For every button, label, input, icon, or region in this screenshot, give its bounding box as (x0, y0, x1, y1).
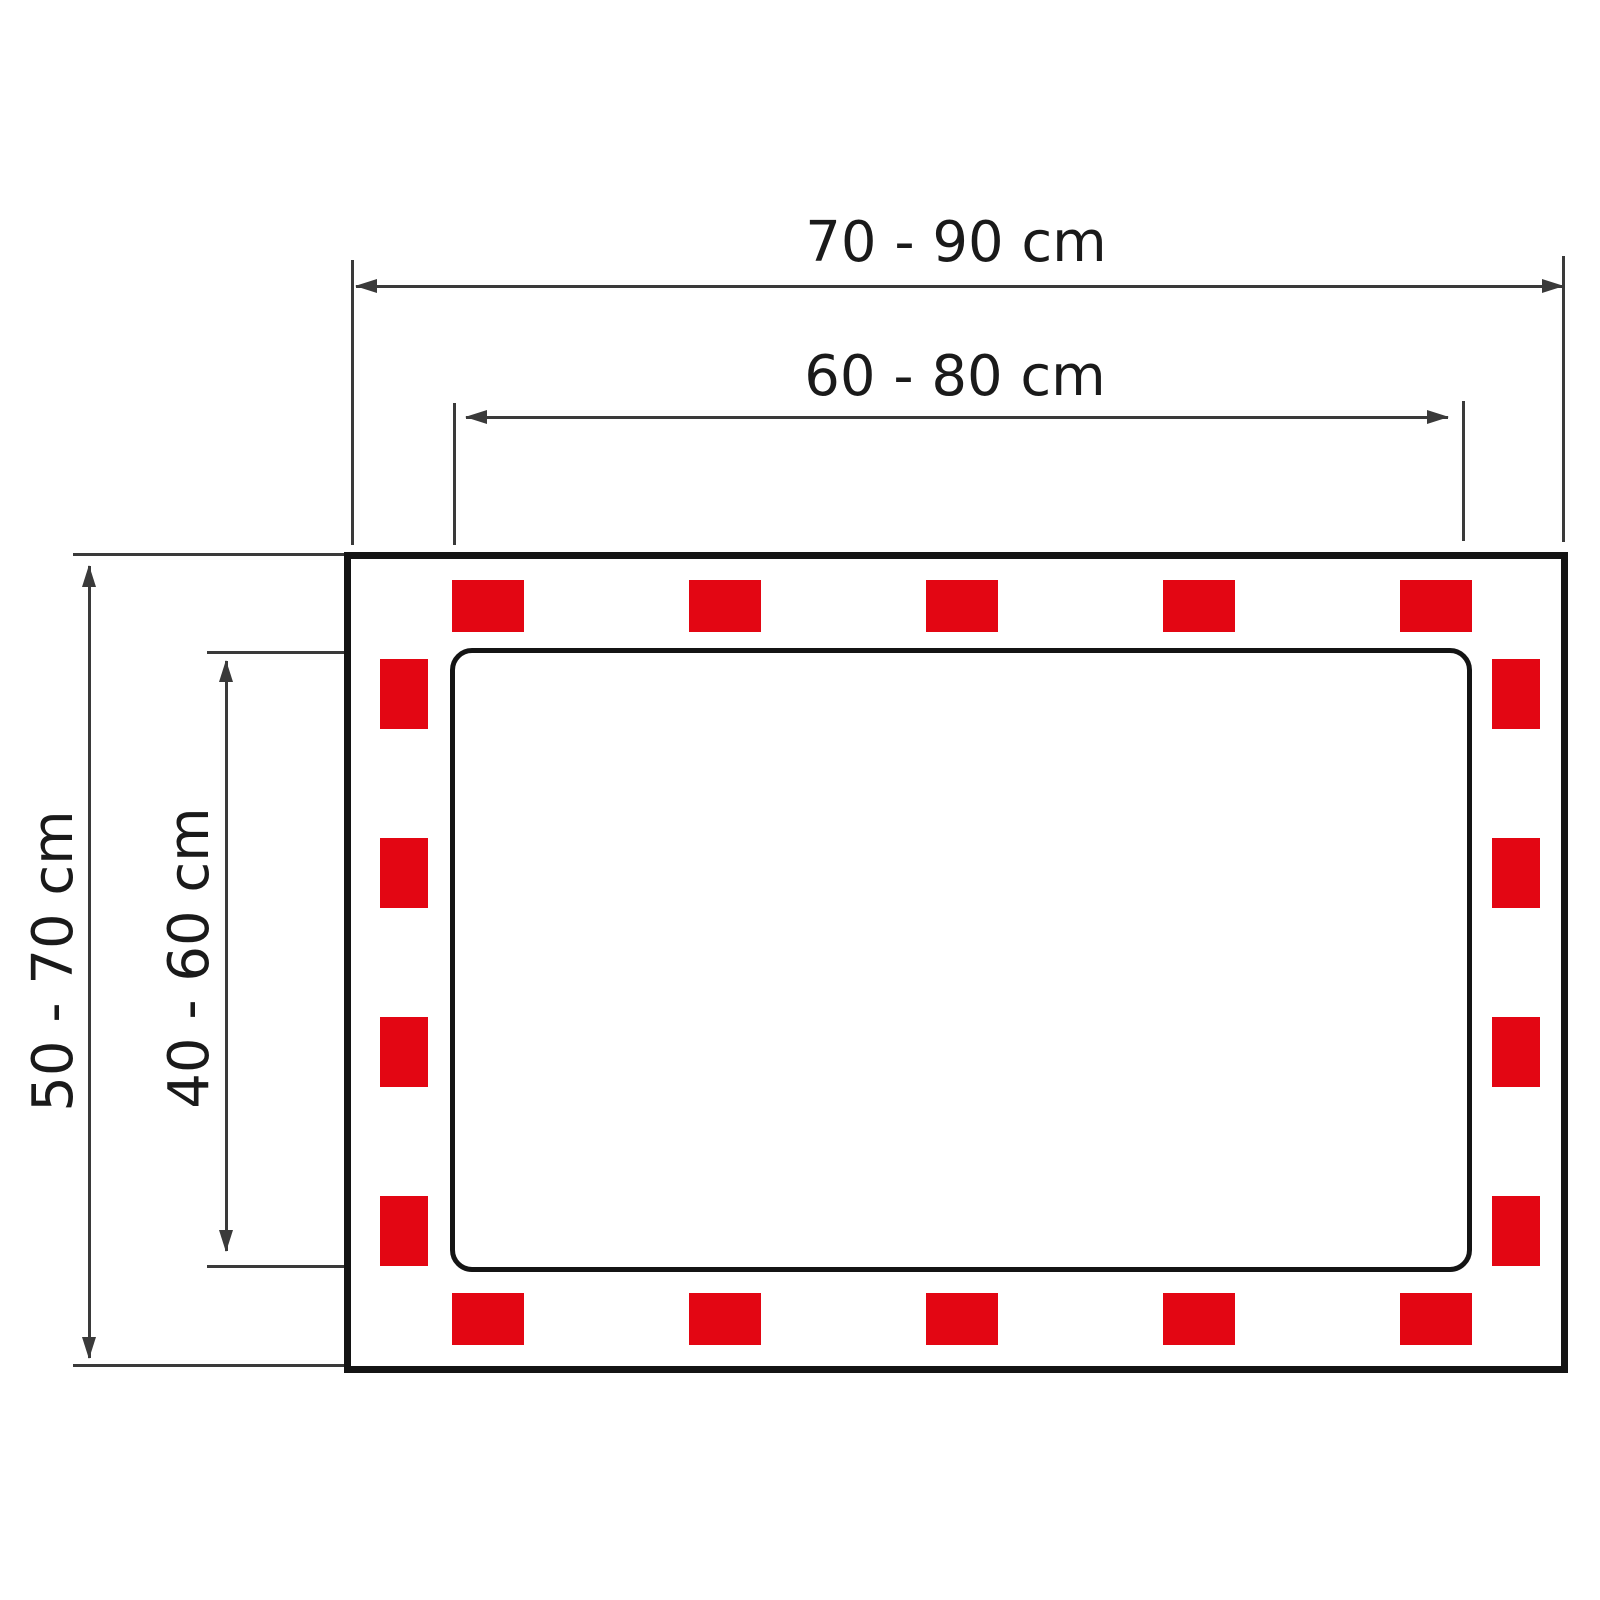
reflective-marker (689, 1293, 761, 1345)
extension-line-outer-left (351, 260, 354, 545)
outer-height-dimension-arrow (88, 566, 91, 1358)
extension-line-top-inner (207, 651, 344, 654)
reflective-marker (1400, 1293, 1472, 1345)
reflective-marker (1492, 659, 1540, 729)
reflective-marker (452, 580, 524, 632)
reflective-marker (380, 838, 428, 908)
reflective-marker (380, 659, 428, 729)
reflective-marker (452, 1293, 524, 1345)
reflective-marker (926, 580, 998, 632)
inner-width-dimension-label: 60 - 80 cm (804, 349, 1105, 405)
reflective-marker (1492, 1017, 1540, 1087)
extension-line-inner-left (453, 403, 456, 545)
reflective-marker (380, 1017, 428, 1087)
outer-width-dimension-label: 70 - 90 cm (805, 215, 1106, 271)
extension-line-top-outer (73, 553, 344, 556)
inner-height-dimension-label: 40 - 60 cm (162, 807, 218, 1108)
dimension-diagram: 70 - 90 cm 60 - 80 cm 50 - 70 cm 40 - 60… (0, 0, 1600, 1600)
reflective-marker (1163, 580, 1235, 632)
outer-width-dimension-arrow (356, 285, 1563, 288)
reflective-marker (689, 580, 761, 632)
reflective-marker (926, 1293, 998, 1345)
reflective-marker (380, 1196, 428, 1266)
reflective-marker (1163, 1293, 1235, 1345)
inner-width-dimension-arrow (466, 416, 1448, 419)
reflective-marker (1492, 838, 1540, 908)
extension-line-outer-right (1562, 256, 1565, 542)
reflective-marker (1492, 1196, 1540, 1266)
extension-line-bottom-inner (207, 1265, 344, 1268)
inner-height-dimension-arrow (225, 661, 228, 1251)
reflective-marker (1400, 580, 1472, 632)
extension-line-inner-right (1462, 401, 1465, 541)
outer-height-dimension-label: 50 - 70 cm (26, 810, 82, 1111)
mirror-glass-outline (450, 648, 1472, 1272)
extension-line-bottom-outer (73, 1364, 344, 1367)
